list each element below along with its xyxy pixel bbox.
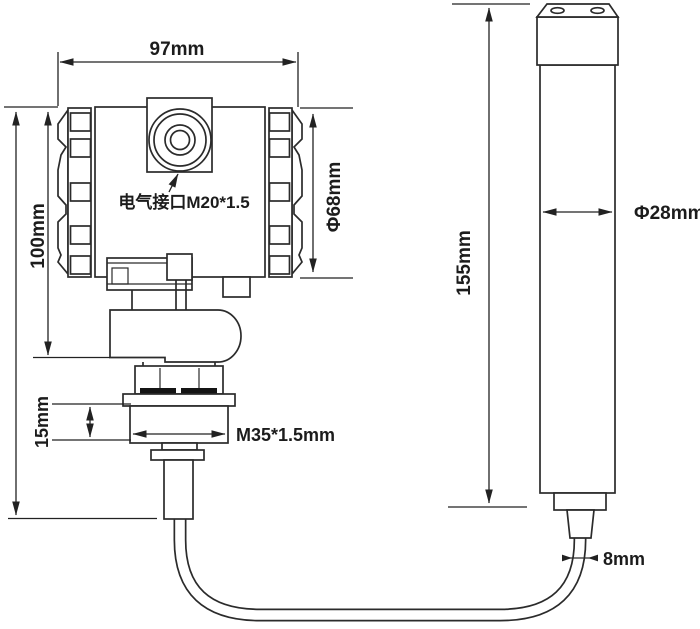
probe-cap-top [537, 4, 618, 17]
fin [71, 226, 91, 244]
dimension-housing-diameter: Φ68mm [300, 108, 353, 278]
fin [71, 113, 91, 131]
mounting-flange [123, 394, 235, 406]
cable-stem [164, 460, 193, 519]
fin [71, 183, 91, 201]
probe-length-label: 155mm [454, 230, 475, 296]
thread-nut [130, 406, 228, 443]
probe-diameter-label: Φ28mm [634, 203, 700, 224]
electrical-port-label: 电气接口M20*1.5 [118, 192, 249, 212]
fin [71, 256, 91, 274]
housing-diameter-label: Φ68mm [324, 162, 345, 233]
probe-cable-stem [567, 510, 594, 538]
cable [180, 503, 580, 615]
thread-height-label: 15mm [32, 396, 52, 448]
arrowhead-right [588, 555, 598, 562]
cable-outline [180, 503, 580, 615]
arrowhead-left [562, 555, 572, 562]
process-connection [110, 310, 241, 362]
dimension-probe-length: 155mm [448, 4, 530, 507]
probe-collar [554, 493, 606, 510]
sight-glass-center [171, 131, 190, 150]
side-block [223, 277, 250, 297]
gasket-left [140, 388, 176, 394]
probe-assembly [537, 4, 618, 538]
transmitter-assembly [58, 98, 302, 519]
vent-hole-left [551, 8, 564, 14]
cable-gland-collar [151, 450, 204, 460]
fin-cover-left [58, 108, 91, 277]
vent-hole-right [591, 8, 604, 14]
dimension-thread-height: 15mm [32, 396, 131, 448]
nut-neck [162, 443, 197, 450]
thread-spec-label: M35*1.5mm [236, 425, 335, 445]
housing-height-label: 100mm [28, 203, 49, 269]
terminal-block [167, 254, 192, 280]
fin-cover-profile [58, 110, 68, 274]
probe-body [540, 65, 615, 493]
gasket-right [181, 388, 217, 394]
probe-cap [537, 17, 618, 65]
extension-lines [52, 404, 131, 440]
dimension-housing-width: 97mm [4, 39, 298, 107]
housing-width-label: 97mm [150, 39, 205, 60]
cable-diameter-label: 8mm [603, 549, 645, 569]
technical-drawing: 97mm Φ68mm 100mm 15mm M35*1.5mm 155mm Φ2… [0, 0, 700, 629]
transmitter-dimension-diagram: 97mm Φ68mm 100mm 15mm M35*1.5mm 155mm Φ2… [0, 0, 700, 629]
fin [71, 139, 91, 157]
fin-cover-right [269, 108, 302, 277]
cable-core [180, 503, 580, 615]
